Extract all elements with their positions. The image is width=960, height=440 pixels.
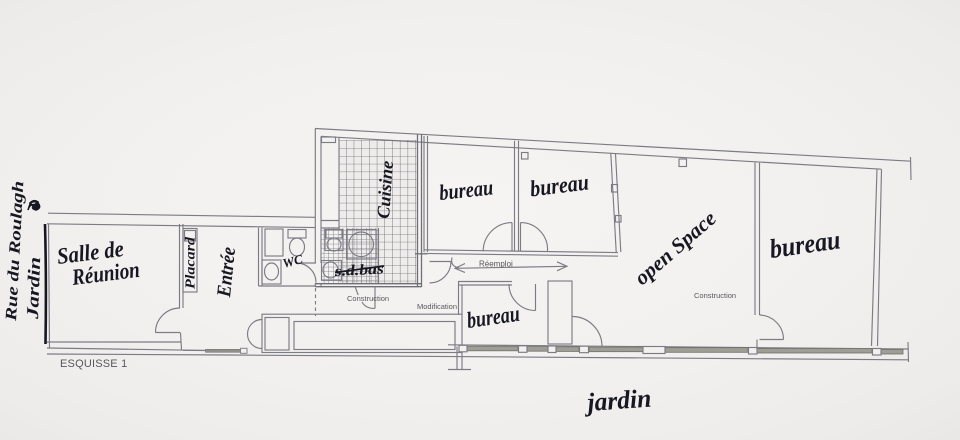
svg-text:Construction: Construction (694, 291, 736, 300)
svg-text:Placard: Placard (184, 236, 199, 289)
svg-text:Construction: Construction (347, 294, 389, 303)
svg-text:Réemploi: Réemploi (479, 260, 513, 269)
svg-text:s.d.bas: s.d.bas (333, 261, 384, 280)
svg-text:Jardin: Jardin (23, 257, 44, 321)
svg-text:ESQUISSE 1: ESQUISSE 1 (60, 358, 127, 370)
svg-text:Cuisine: Cuisine (373, 160, 397, 219)
svg-text:Modification: Modification (417, 302, 457, 311)
svg-text:jardin: jardin (582, 384, 652, 418)
